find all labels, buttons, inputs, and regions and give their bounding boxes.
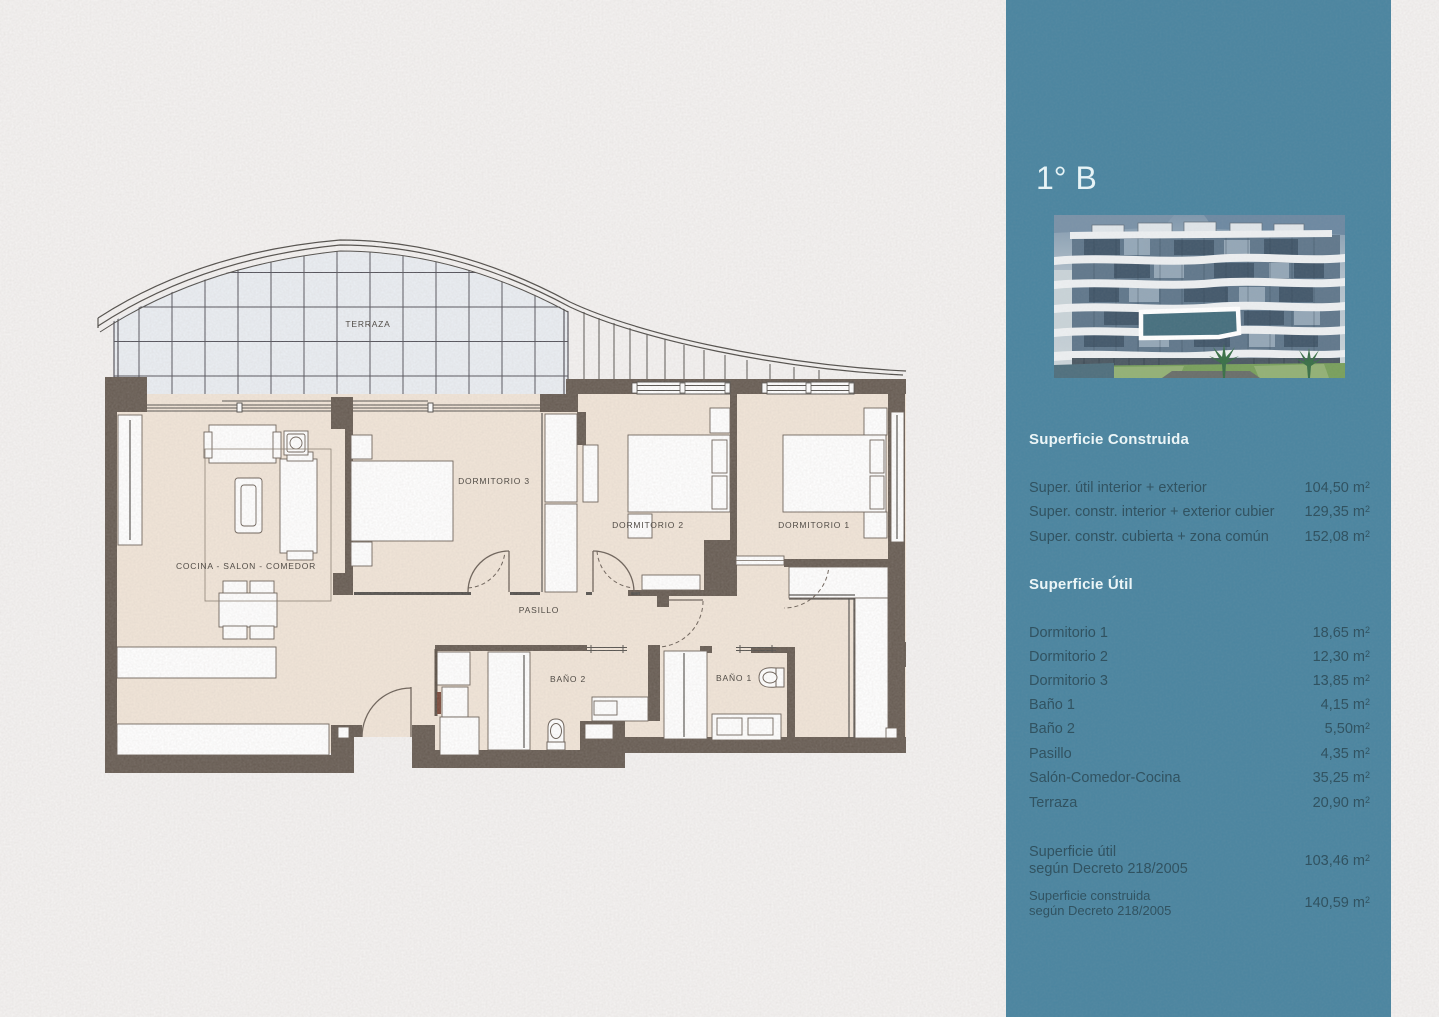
svg-text:PASILLO: PASILLO [519, 605, 559, 615]
svg-text:BAÑO 2: BAÑO 2 [550, 674, 586, 684]
svg-text:DORMITORIO 3: DORMITORIO 3 [458, 476, 530, 486]
svg-text:TERRAZA: TERRAZA [345, 319, 390, 329]
svg-text:COCINA - SALON - COMEDOR: COCINA - SALON - COMEDOR [176, 561, 316, 571]
svg-text:DORMITORIO 2: DORMITORIO 2 [612, 520, 684, 530]
svg-text:BAÑO 1: BAÑO 1 [716, 673, 752, 683]
svg-text:DORMITORIO 1: DORMITORIO 1 [778, 520, 850, 530]
